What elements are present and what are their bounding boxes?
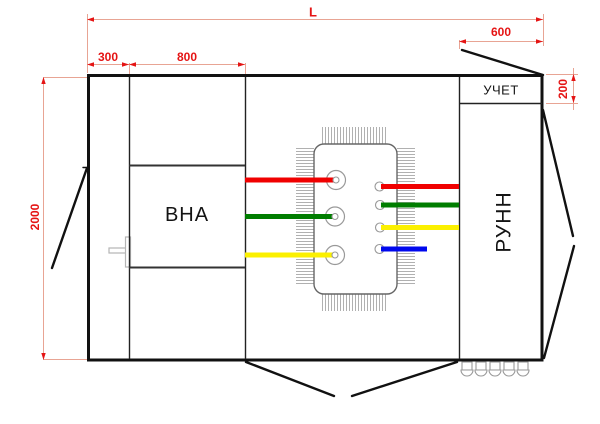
runn-compartment-label: РУНН: [494, 191, 515, 252]
busbar-lv-yellow: [381, 225, 459, 230]
dim-300-label: 300: [98, 51, 118, 63]
door-swing-right-lower: [544, 246, 574, 358]
vna-compartment-label: ВНА: [165, 205, 209, 225]
busbar-lv-blue: [381, 247, 427, 252]
busbar-hv-green: [245, 214, 335, 219]
door-swing-bottom-left: [246, 362, 334, 396]
dim-2000-label: 2000: [29, 204, 41, 231]
busbar-lv-green: [381, 203, 459, 208]
dim-200-label: 200: [557, 79, 569, 99]
door-swing-left: [52, 168, 87, 268]
cable-glands: [461, 362, 529, 376]
busbar-hv-yellow: [245, 253, 335, 258]
dimension-lines: [44, 20, 574, 361]
dim-600-label: 600: [491, 26, 511, 38]
switch-handle: [109, 237, 131, 267]
dim-total-width-label: L: [309, 6, 317, 19]
transformer: [245, 144, 459, 294]
busbar-lv-red: [381, 184, 459, 189]
uchet-compartment-label: УЧЕТ: [483, 84, 519, 97]
substation-layout-drawing: L 300 800 600 2000 200 ВНА УЧЕТ РУНН: [0, 0, 600, 424]
door-swing-right-upper: [543, 110, 573, 236]
dim-800-label: 800: [177, 51, 197, 63]
door-swing-bottom-right: [352, 362, 457, 396]
busbar-hv-red: [245, 178, 336, 183]
door-swing-top-right: [462, 50, 543, 75]
dimension-arrows: [41, 17, 575, 360]
